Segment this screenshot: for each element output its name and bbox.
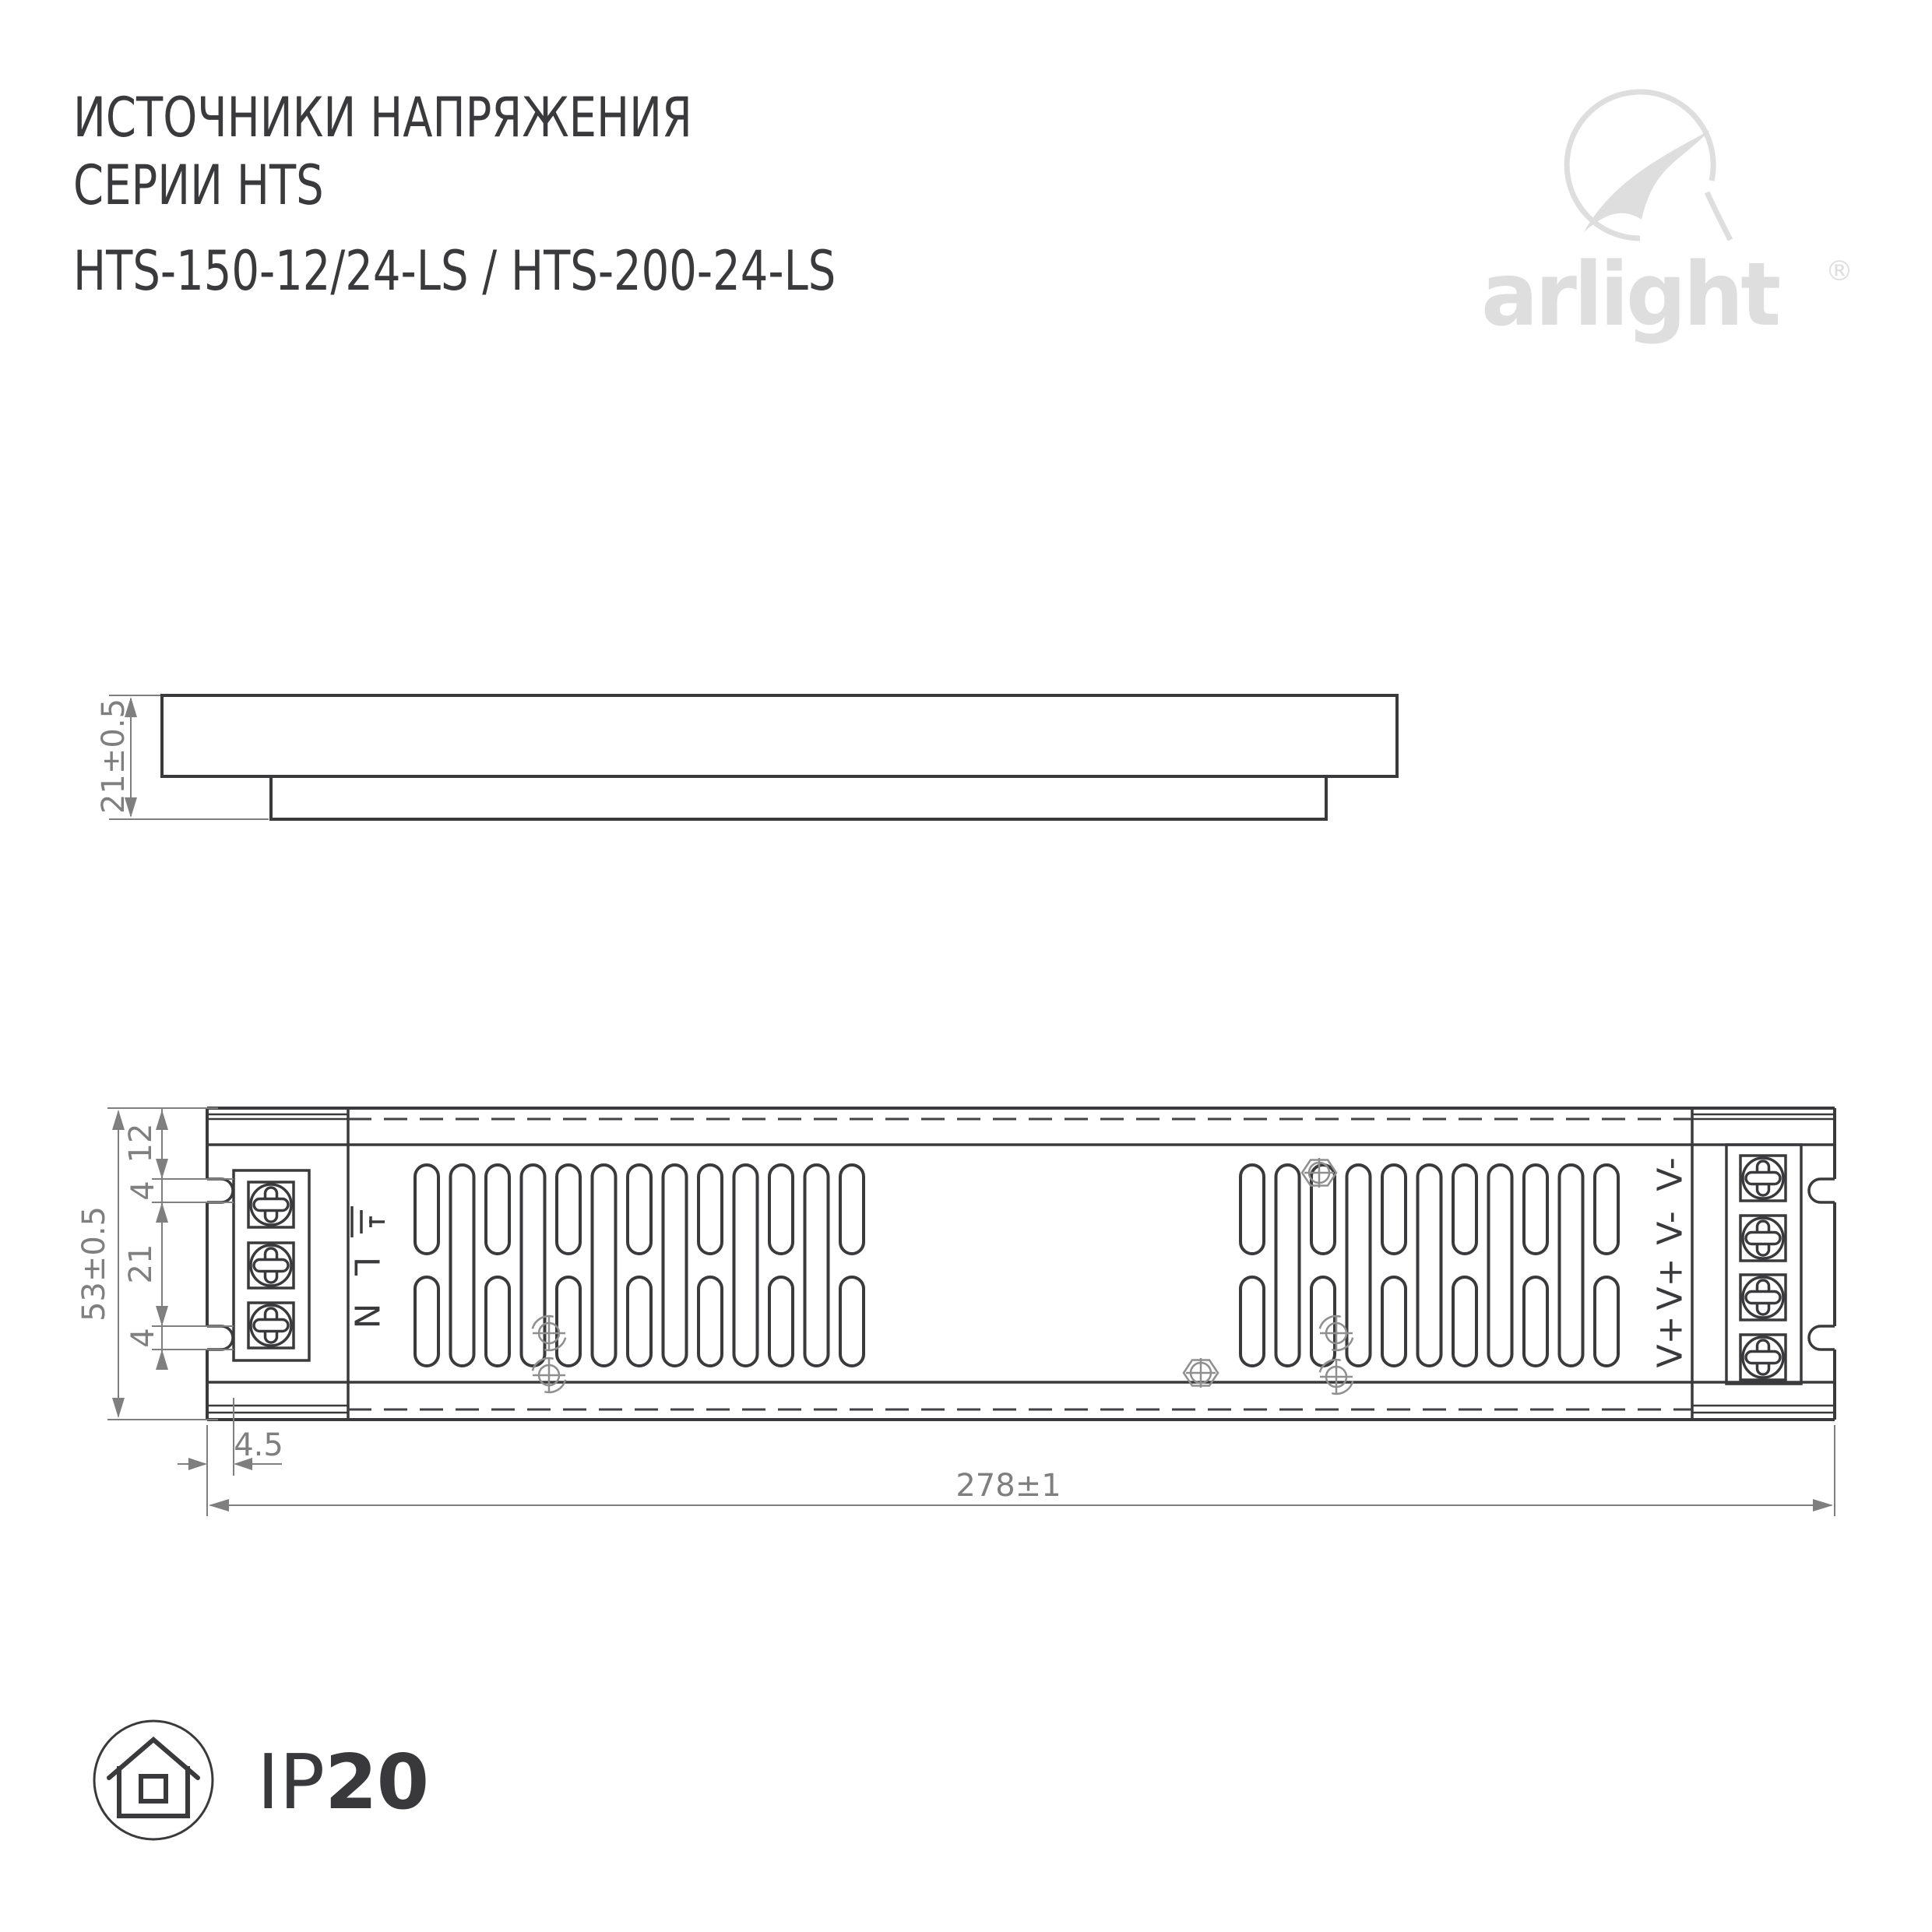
side-view	[162, 695, 1397, 819]
ip-rating: IP20	[257, 1738, 428, 1826]
chain-dimension	[152, 1108, 234, 1370]
output-label-1: V-	[1651, 1157, 1691, 1191]
technical-drawing	[0, 0, 1932, 1932]
mount-slot-left-top	[207, 1179, 233, 1202]
dim-flange-offset: 4.5	[234, 1427, 283, 1463]
mount-slot-right-top	[1809, 1179, 1835, 1202]
house-window	[141, 1776, 166, 1801]
dim-overall-height: 53±0.5	[76, 1206, 112, 1321]
indoor-house-icon	[94, 1721, 213, 1839]
ip-rating-prefix: IP	[257, 1738, 325, 1826]
datasheet-page: ИСТОЧНИКИ НАПРЯЖЕНИЯ СЕРИИ HTS HTS-150-1…	[0, 0, 1932, 1932]
generated-geometry	[248, 1156, 1786, 1394]
mount-slot-left-bottom	[207, 1326, 233, 1350]
dim-overall-length: 278±1	[955, 1468, 1061, 1504]
ip-rating-value: 20	[325, 1738, 428, 1826]
mount-slot-right-bottom	[1809, 1326, 1835, 1350]
dim-chain-21: 21	[123, 1244, 159, 1284]
side-view-height-dimension	[109, 695, 269, 819]
earth-ground-icon	[352, 1206, 385, 1237]
side-view-mounting-plate	[271, 776, 1326, 819]
output-label-2: V-	[1651, 1211, 1691, 1244]
dim-chain-12: 12	[123, 1124, 159, 1163]
output-label-3: V+	[1651, 1258, 1691, 1311]
input-label-line: L	[347, 1257, 386, 1276]
output-label-4: V+	[1651, 1316, 1691, 1368]
dim-chain-4a: 4	[125, 1181, 161, 1200]
input-label-neutral: N	[347, 1304, 386, 1329]
dim-side-height: 21±0.5	[96, 699, 132, 814]
side-view-case	[162, 695, 1397, 776]
dim-chain-4b: 4	[125, 1328, 161, 1347]
